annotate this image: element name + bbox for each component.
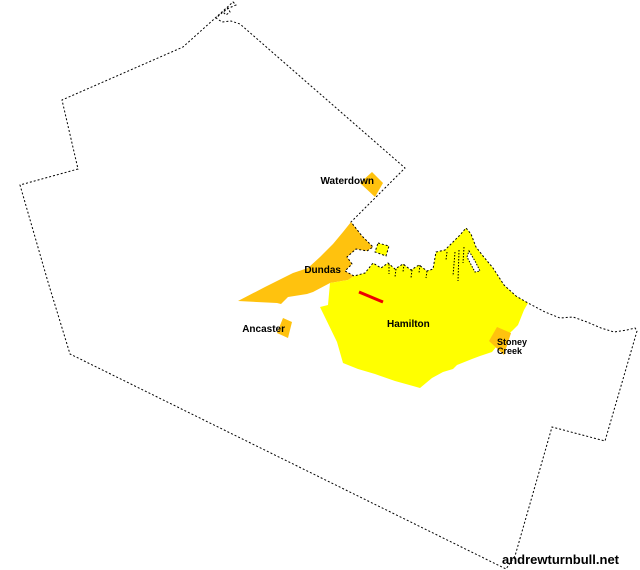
municipal-boundary [20, 2, 637, 569]
hamilton-region-map: WaterdownDundasAncasterHamiltonStoneyCre… [0, 0, 640, 570]
stoney-creek-label-line2: Creek [497, 346, 523, 356]
watermark-text: andrewturnbull.net [502, 552, 619, 567]
map-svg: WaterdownDundasAncasterHamiltonStoneyCre… [0, 0, 640, 570]
waterdown-label: Waterdown [320, 176, 374, 187]
dundas-label: Dundas [304, 265, 341, 276]
desjardins-pond [375, 243, 389, 256]
ancaster-label: Ancaster [242, 324, 285, 335]
hamilton-label: Hamilton [387, 319, 430, 330]
